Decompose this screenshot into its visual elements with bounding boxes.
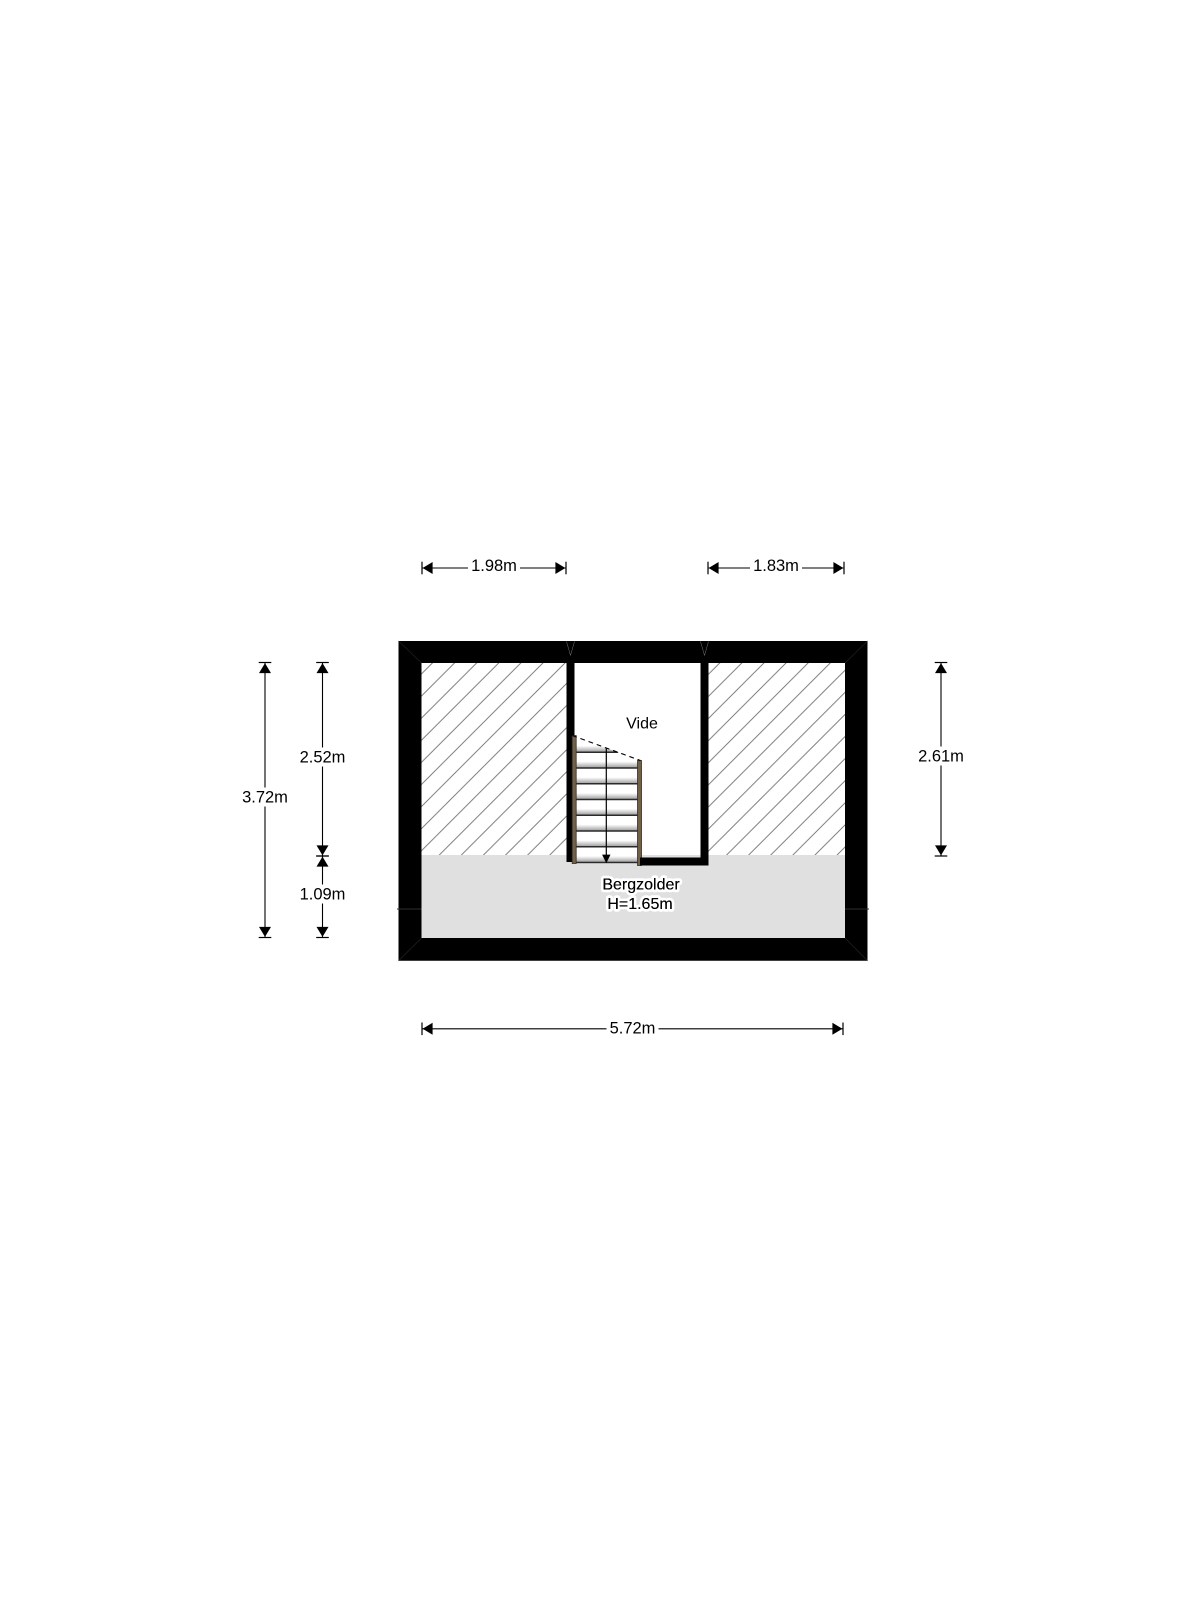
svg-text:1.83m: 1.83m <box>753 557 799 575</box>
svg-text:Vide: Vide <box>626 716 658 733</box>
svg-text:H=1.65m: H=1.65m <box>607 896 672 913</box>
svg-text:1.09m: 1.09m <box>300 886 346 904</box>
svg-text:2.61m: 2.61m <box>918 748 964 766</box>
svg-text:Bergzolder: Bergzolder <box>602 876 680 893</box>
svg-text:2.52m: 2.52m <box>300 749 346 767</box>
svg-text:3.72m: 3.72m <box>242 789 288 807</box>
svg-text:1.98m: 1.98m <box>471 557 517 575</box>
svg-text:5.72m: 5.72m <box>610 1020 656 1038</box>
